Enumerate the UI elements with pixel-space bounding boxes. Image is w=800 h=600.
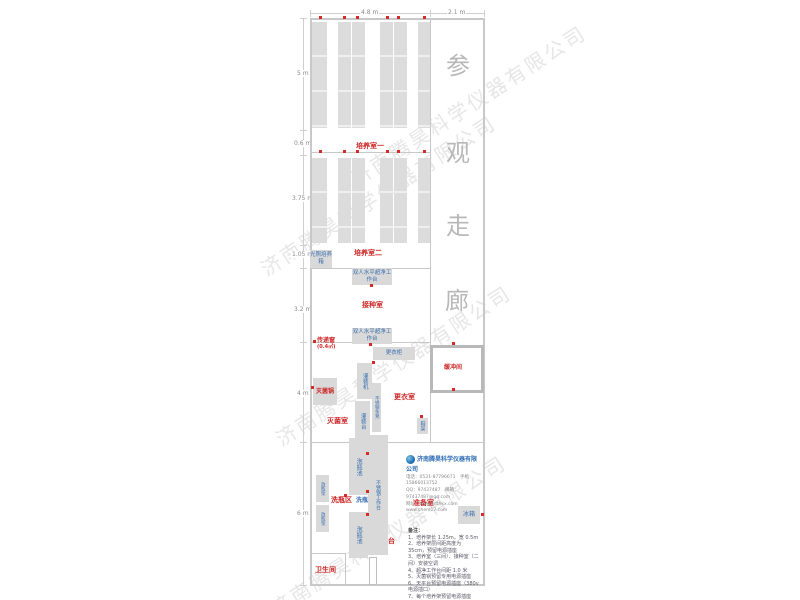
label-pass-window-area: (0.4㎡)	[317, 343, 335, 350]
door-dot	[311, 386, 314, 389]
equip-clean-bench-2: 双人水平超净工作台	[352, 328, 392, 344]
door-dot	[356, 16, 359, 19]
door-dot	[452, 388, 455, 391]
dim-label-left-1: 5 m	[296, 70, 310, 77]
equip-shoe-rack: 鞋架	[417, 418, 428, 434]
left-dimension-line	[303, 18, 304, 585]
door-dot	[366, 513, 369, 516]
dim-label-left-6: 4 m	[296, 390, 310, 397]
door-dot	[319, 16, 322, 19]
door-dot	[356, 150, 359, 153]
door-dot	[343, 16, 346, 19]
equip-steel-bench: 不锈钢条凳	[372, 383, 381, 432]
equip-wardrobe: 更衣柜	[373, 347, 415, 360]
dim-label-width-corridor: 2.1 m	[447, 9, 466, 16]
door-dot	[313, 340, 316, 343]
door-dot	[481, 513, 484, 516]
dim-tick	[300, 18, 307, 19]
door-dot	[319, 150, 322, 153]
floor-plan-canvas: 济南腾昊科学仪器有限公司 济南腾昊科学仪器有限公司 济南腾昊科学仪器有限公司 济…	[0, 0, 800, 600]
room-label-buffer: 缓冲间	[444, 362, 462, 371]
door-dot	[397, 150, 400, 153]
company-name: 济南腾昊科学仪器有限公司	[406, 456, 477, 473]
wall-sterilization-prep	[310, 442, 485, 443]
door-dot	[386, 16, 389, 19]
door-dot	[366, 452, 369, 455]
note-line-3: 3、培养室（三间）、接种室（二间）安装空调	[408, 554, 480, 567]
culture-rack	[312, 22, 327, 128]
door-dot	[369, 343, 372, 346]
dim-tick	[300, 245, 307, 246]
corridor-char-1: 参	[446, 46, 470, 81]
company-qq-line: QQ：97437487 邮箱：97437487@qq.com	[406, 488, 481, 502]
door-rect	[369, 557, 377, 585]
equip-filling-machine: 灌装机	[357, 363, 372, 399]
door-dot	[397, 16, 400, 19]
dim-label-left-7: 6 m	[296, 510, 310, 517]
door-dot	[420, 415, 423, 418]
culture-rack	[352, 158, 365, 243]
note-line-5: 5、灭菌锅预留专用电源插座	[408, 574, 480, 581]
room-label-toilet: 卫生间	[315, 565, 336, 575]
corridor-char-3: 走	[446, 206, 470, 241]
culture-rack	[338, 22, 351, 128]
culture-rack	[338, 158, 351, 243]
door-dot	[344, 494, 347, 497]
company-web-line: 网址：www.sdthkx.com www.chem17.com	[406, 502, 481, 516]
wall-corridor-lower	[430, 392, 431, 442]
culture-rack	[394, 158, 407, 243]
room-label-inoculation: 接种室	[362, 300, 383, 310]
room-label-sterilization: 灭菌室	[327, 416, 348, 426]
equip-sterilizer: 灭菌锅	[313, 378, 337, 405]
room-label-culture2: 培养室二	[354, 248, 382, 258]
notes-title: 备注：	[408, 528, 480, 535]
note-line-7: 7、每个培养架预留电源插座（×700w 左右）	[408, 594, 480, 600]
corridor-char-2: 观	[446, 133, 470, 168]
culture-rack	[394, 22, 407, 128]
dim-tick	[300, 268, 307, 269]
equip-bottle-rack-1: 放瓶架	[316, 475, 329, 502]
dim-tick	[300, 442, 307, 443]
dim-tick	[300, 130, 307, 131]
company-name-row: 济南腾昊科学仪器有限公司	[406, 455, 481, 475]
door-dot	[386, 150, 389, 153]
door-dot	[370, 284, 373, 287]
dim-tick	[310, 10, 311, 17]
wall-toilet-top	[310, 553, 346, 554]
door-dot	[452, 342, 455, 345]
equip-light-incubator: 光照培养箱	[310, 250, 332, 268]
room-label-culture1: 培养室一	[356, 141, 384, 151]
notes-block: 备注： 1、培养架长 1.25m，宽 0.5m 2、培养架层间距高度为 35cm…	[408, 528, 480, 600]
dim-tick	[300, 342, 307, 343]
dim-tick	[300, 585, 307, 586]
equip-steel-worktable: 不锈钢工作台	[368, 435, 388, 555]
note-line-2: 2、培养架层间距高度为 35cm，预留电源插座	[408, 541, 480, 554]
equip-bottle-rack-2: 放瓶架	[316, 505, 329, 532]
door-dot	[423, 16, 426, 19]
door-dot	[423, 150, 426, 153]
note-line-6: 6、天平台预留电源插座（380v 电源插口）	[408, 581, 480, 594]
company-logo-icon	[406, 455, 415, 464]
equip-soak-pool-2: 泡瓶池	[349, 512, 368, 558]
wall-room1-room2	[310, 152, 430, 153]
company-block: 济南腾昊科学仪器有限公司 电话：0531-87796671 手机：1586601…	[406, 455, 481, 515]
dim-tick	[300, 155, 307, 156]
door-dot	[343, 150, 346, 153]
culture-rack	[312, 158, 327, 243]
equip-soak-pool-1: 泡瓶池	[349, 438, 368, 495]
dim-tick	[484, 10, 485, 17]
corridor-char-4: 廊	[445, 281, 469, 316]
door-dot	[366, 490, 369, 493]
dim-tick	[430, 10, 431, 17]
culture-rack	[418, 22, 430, 128]
room-label-washing-area: 洗瓶区	[331, 495, 352, 505]
culture-rack	[380, 158, 393, 243]
company-tel-line: 电话：0531-87796671 手机：15866013752	[406, 475, 481, 489]
outer-wall-right	[483, 18, 485, 586]
culture-rack	[352, 22, 365, 128]
door-dot	[372, 361, 375, 364]
wall-toilet-right	[345, 553, 346, 585]
dim-label-width-main: 4.8 m	[360, 9, 379, 16]
wall-corridor	[430, 18, 431, 345]
culture-rack	[418, 158, 430, 243]
equip-clean-bench-1: 双人水平超净工作台	[352, 268, 392, 285]
room-label-changing: 更衣室	[394, 392, 415, 402]
culture-rack	[380, 22, 393, 128]
